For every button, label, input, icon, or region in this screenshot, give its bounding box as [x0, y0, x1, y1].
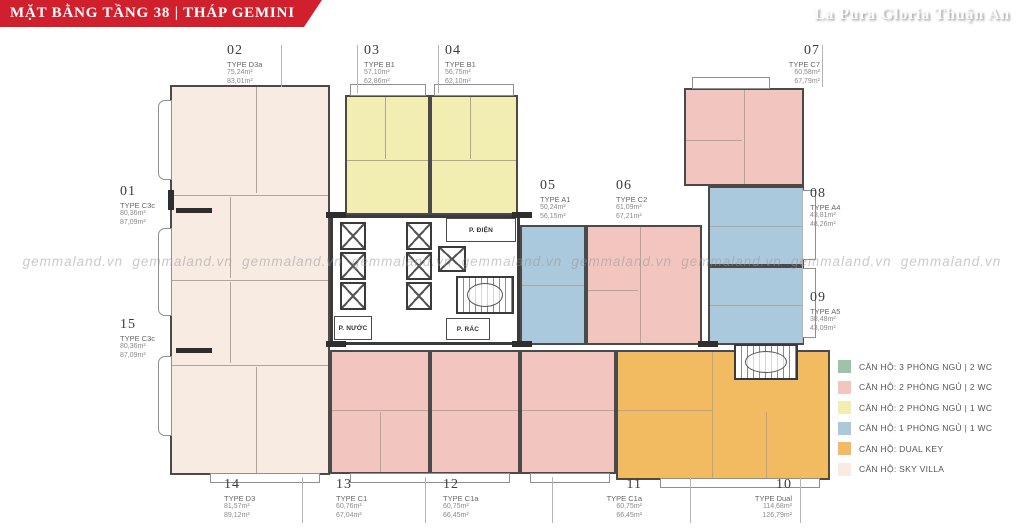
unit-area: 80,36m²	[120, 343, 194, 351]
leader-line	[302, 477, 303, 523]
legend-swatch-2pn-1wc	[838, 401, 851, 414]
unit-label-03: 03 TYPE B1 57,10m² 62,86m²	[364, 43, 438, 86]
unit-number: 13	[336, 477, 410, 494]
staircase-icon	[456, 276, 514, 314]
unit-area: 80,36m²	[120, 210, 194, 218]
unit-label-09: 09 TYPE A5 38,48m² 43,09m²	[810, 290, 870, 333]
unit-number: 06	[616, 178, 690, 195]
legend-swatch-1pn-1wc	[838, 422, 851, 435]
unit-number: 04	[445, 43, 519, 60]
elevator-icon	[406, 282, 432, 310]
unit-number: 15	[120, 317, 194, 334]
unit-area: 67,04m²	[336, 512, 410, 520]
unit-type: TYPE C1a	[562, 495, 642, 504]
unit-area: 83,01m²	[227, 78, 301, 86]
unit-number: 08	[810, 186, 870, 203]
balcony	[158, 228, 172, 316]
leader-line	[438, 45, 439, 93]
partition-line	[347, 160, 428, 161]
unit-label-05: 05 TYPE A1 50,24m² 56,15m²	[540, 178, 614, 221]
unit-type: TYPE B1	[364, 61, 438, 70]
unit-area: 61,09m²	[616, 204, 690, 212]
legend-row: CĂN HỘ: SKY VILLA	[838, 463, 992, 476]
partition-line	[230, 197, 231, 278]
unit-number: 14	[224, 477, 298, 494]
legend-row: CĂN HỘ: 1 PHÒNG NGỦ | 1 WC	[838, 422, 992, 435]
partition-line	[172, 280, 328, 281]
legend-swatch-3pn-2wc	[838, 360, 851, 373]
unit-label-01: 01 TYPE C3c 80,36m² 87,09m²	[120, 184, 194, 227]
elevator-icon	[340, 282, 366, 310]
unit-type: TYPE C3c	[120, 335, 194, 344]
unit-area: 67,21m²	[616, 213, 690, 221]
unit-area: 89,12m²	[224, 512, 298, 520]
unit-number: 01	[120, 184, 194, 201]
unit-label-06: 06 TYPE C2 61,09m² 67,21m²	[616, 178, 690, 221]
water-room-label: P. NƯỚC	[339, 325, 368, 332]
leader-line	[425, 477, 426, 523]
balcony	[158, 100, 172, 180]
unit-area: 62,86m²	[364, 78, 438, 86]
unit-type: TYPE C1	[336, 495, 410, 504]
unit-area: 60,76m²	[336, 503, 410, 511]
unit-area: 56,15m²	[540, 213, 614, 221]
unit-area: 38,48m²	[810, 316, 870, 324]
watermark: gemmaland.vn	[23, 254, 124, 269]
unit-type: TYPE A4	[810, 204, 870, 213]
partition-line	[522, 285, 584, 286]
legend-swatch-sky-villa	[838, 463, 851, 476]
partition-line	[230, 282, 231, 363]
legend-row: CĂN HỘ: 2 PHÒNG NGỦ | 2 WC	[838, 381, 992, 394]
staircase-icon	[734, 344, 798, 380]
unit-area: 48,26m²	[810, 221, 870, 229]
partition-line	[686, 140, 742, 141]
wall-column	[512, 212, 532, 218]
legend-label: CĂN HỘ: 2 PHÒNG NGỦ | 1 WC	[859, 403, 992, 413]
floorplan-page: MẶT BẰNG TẦNG 38 | THÁP GEMINI La Pura G…	[0, 0, 1024, 532]
unit-block-04	[430, 95, 518, 215]
leader-line	[800, 477, 801, 523]
title-banner: MẶT BẰNG TẦNG 38 | THÁP GEMINI	[0, 0, 322, 27]
unit-label-10: 10 TYPE Dual 114,68m² 126,79m²	[712, 477, 792, 520]
unit-type: TYPE A1	[540, 196, 614, 205]
unit-area: 66,45m²	[443, 512, 517, 520]
partition-line	[172, 195, 328, 196]
unit-area: 75,24m²	[227, 69, 301, 77]
page-title: MẶT BẰNG TẦNG 38 | THÁP GEMINI	[10, 5, 295, 22]
unit-number: 03	[364, 43, 438, 60]
wall-column	[326, 341, 346, 347]
unit-number: 07	[746, 43, 820, 60]
partition-line	[522, 410, 614, 411]
unit-area: 60,58m²	[746, 69, 820, 77]
unit-type: TYPE D3a	[227, 61, 301, 70]
unit-label-14: 14 TYPE D3 81,57m² 89,12m²	[224, 477, 298, 520]
unit-area: 50,24m²	[540, 204, 614, 212]
partition-line	[172, 365, 328, 366]
partition-line	[256, 87, 257, 193]
legend-label: CĂN HỘ: 1 PHÒNG NGỦ | 1 WC	[859, 423, 992, 433]
partition-line	[710, 305, 802, 306]
unit-number: 05	[540, 178, 614, 195]
watermark: gemmaland.vn	[901, 254, 1002, 269]
wall-column	[326, 212, 346, 218]
legend: CĂN HỘ: 3 PHÒNG NGỦ | 2 WC CĂN HỘ: 2 PHÒ…	[838, 360, 992, 483]
unit-type: TYPE C1a	[443, 495, 517, 504]
legend-label: CĂN HỘ: DUAL KEY	[859, 444, 943, 454]
unit-label-15: 15 TYPE C3c 80,36m² 87,09m²	[120, 317, 194, 360]
unit-number: 11	[562, 477, 642, 494]
unit-label-11: 11 TYPE C1a 60,75m² 66,45m²	[562, 477, 642, 520]
unit-type: TYPE C2	[616, 196, 690, 205]
partition-line	[470, 97, 471, 159]
unit-area: 81,57m²	[224, 503, 298, 511]
legend-row: CĂN HỘ: 3 PHÒNG NGỦ | 2 WC	[838, 360, 992, 373]
partition-line	[712, 352, 713, 478]
unit-type: TYPE Dual	[712, 495, 792, 504]
leader-line	[357, 45, 358, 93]
unit-type: TYPE B1	[445, 61, 519, 70]
legend-row: CĂN HỘ: 2 PHÒNG NGỦ | 1 WC	[838, 401, 992, 414]
trash-room: P. RÁC	[446, 318, 490, 340]
unit-block-11	[520, 350, 616, 474]
partition-line	[744, 90, 745, 184]
unit-label-07: 07 TYPE C7 60,58m² 67,79m²	[746, 43, 820, 86]
legend-label: CĂN HỘ: 3 PHÒNG NGỦ | 2 WC	[859, 362, 992, 372]
partition-line	[588, 290, 638, 291]
unit-area: 67,79m²	[746, 78, 820, 86]
leader-line	[690, 477, 691, 523]
unit-area: 60,75m²	[443, 503, 517, 511]
unit-block-06	[586, 225, 702, 345]
unit-label-13: 13 TYPE C1 60,76m² 67,04m²	[336, 477, 410, 520]
legend-swatch-dual-key	[838, 442, 851, 455]
unit-label-08: 08 TYPE A4 43,81m² 48,26m²	[810, 186, 870, 229]
unit-area: 87,09m²	[120, 219, 194, 227]
unit-area: 114,68m²	[712, 503, 792, 511]
partition-line	[710, 226, 802, 227]
partition-line	[432, 160, 516, 161]
unit-area: 57,10m²	[364, 69, 438, 77]
service-elevator-icon	[438, 246, 466, 272]
partition-line	[640, 227, 641, 343]
unit-type: TYPE C3c	[120, 202, 194, 211]
elevator-icon	[340, 222, 366, 250]
unit-area: 66,45m²	[562, 512, 642, 520]
partition-line	[256, 367, 257, 473]
partition-line	[432, 410, 518, 411]
unit-area: 62,10m²	[445, 78, 519, 86]
partition-line	[332, 410, 428, 411]
electrical-room-label: P. ĐIỆN	[469, 227, 493, 234]
unit-area: 43,81m²	[810, 212, 870, 220]
leader-line	[802, 188, 803, 343]
partition-line	[766, 412, 767, 478]
partition-line	[380, 412, 381, 472]
project-brand: La Pura Gloria Thuận An	[814, 6, 1010, 24]
unit-block-03	[345, 95, 430, 215]
elevator-icon	[406, 222, 432, 250]
unit-area: 87,09m²	[120, 352, 194, 360]
legend-swatch-2pn-2wc	[838, 381, 851, 394]
partition-line	[618, 410, 712, 411]
unit-type: TYPE A5	[810, 308, 870, 317]
balcony	[158, 356, 172, 436]
partition-line	[385, 97, 386, 159]
unit-label-04: 04 TYPE B1 56,75m² 62,10m²	[445, 43, 519, 86]
elevator-icon	[406, 252, 432, 280]
unit-area: 60,75m²	[562, 503, 642, 511]
unit-label-12: 12 TYPE C1a 60,75m² 66,45m²	[443, 477, 517, 520]
elevator-icon	[340, 252, 366, 280]
unit-number: 10	[712, 477, 792, 494]
water-room: P. NƯỚC	[334, 316, 372, 340]
unit-number: 09	[810, 290, 870, 307]
wall-column	[512, 341, 532, 347]
unit-label-02: 02 TYPE D3a 75,24m² 83,01m²	[227, 43, 301, 86]
trash-room-label: P. RÁC	[457, 326, 479, 333]
unit-area: 43,09m²	[810, 325, 870, 333]
legend-label: CĂN HỘ: SKY VILLA	[859, 464, 944, 474]
legend-row: CĂN HỘ: DUAL KEY	[838, 442, 992, 455]
unit-type: TYPE D3	[224, 495, 298, 504]
wall-column	[698, 341, 718, 347]
legend-label: CĂN HỘ: 2 PHÒNG NGỦ | 2 WC	[859, 382, 992, 392]
unit-number: 02	[227, 43, 301, 60]
unit-area: 126,79m²	[712, 512, 792, 520]
leader-line	[552, 477, 553, 523]
unit-block-12	[430, 350, 520, 474]
leader-line	[822, 45, 823, 87]
electrical-room: P. ĐIỆN	[446, 218, 516, 242]
unit-type: TYPE C7	[746, 61, 820, 70]
unit-area: 56,75m²	[445, 69, 519, 77]
unit-number: 12	[443, 477, 517, 494]
